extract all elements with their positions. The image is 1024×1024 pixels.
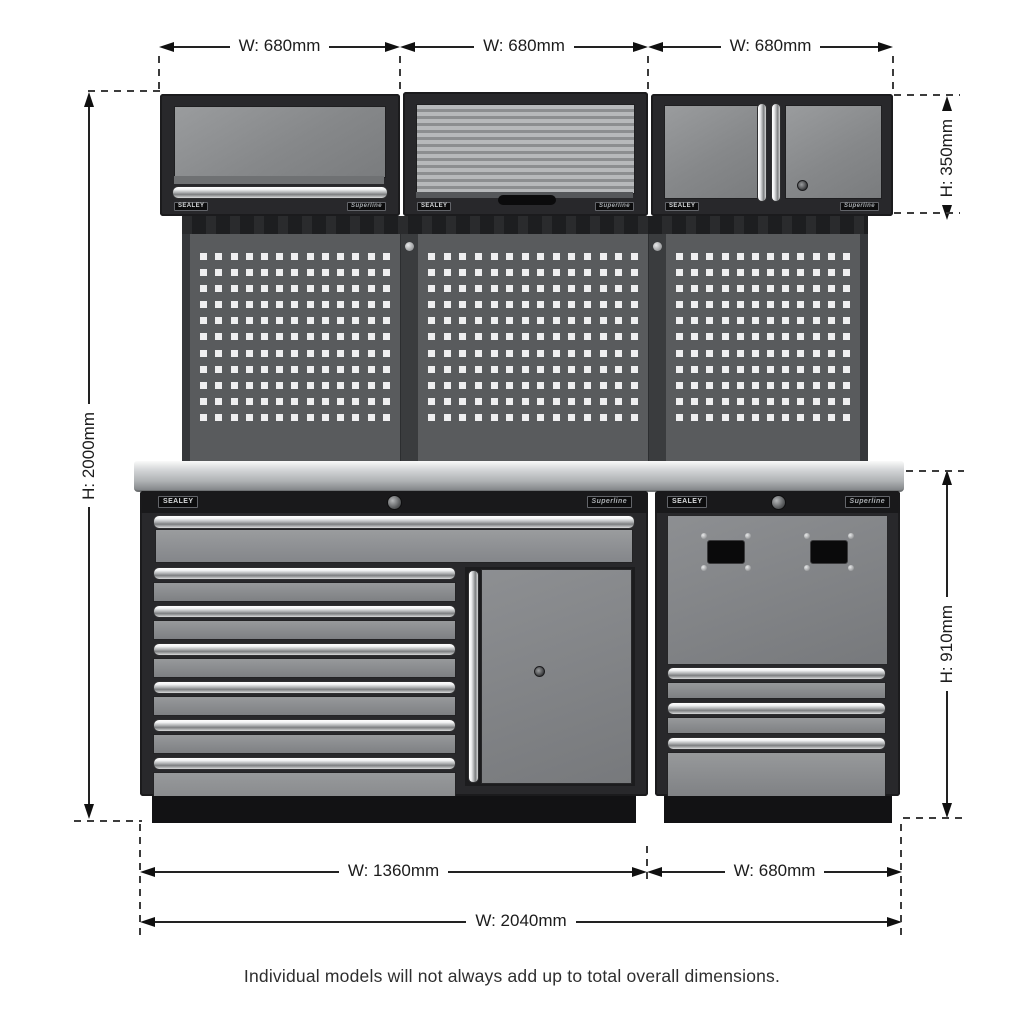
- peg-hole: [722, 350, 729, 357]
- peg-hole: [291, 269, 298, 276]
- peg-hole: [843, 350, 850, 357]
- base-module-left: SEALEY Superline: [140, 491, 648, 796]
- peg-hole: [782, 398, 789, 405]
- peg-hole: [752, 333, 759, 340]
- peg-hole: [276, 285, 283, 292]
- left-door-panel: [664, 105, 761, 199]
- peg-hole: [843, 398, 850, 405]
- peg-hole: [691, 317, 698, 324]
- pegboard-holes: [672, 248, 854, 426]
- pegboard-divider: [400, 234, 420, 463]
- drawer: [667, 737, 886, 800]
- peg-hole: [813, 301, 820, 308]
- peg-hole: [491, 350, 498, 357]
- peg-hole: [276, 350, 283, 357]
- dim-line: [415, 46, 474, 48]
- peg-hole: [813, 414, 820, 421]
- dim-line: [820, 46, 878, 48]
- brand-badge: SEALEY: [665, 202, 699, 211]
- peg-hole: [722, 285, 729, 292]
- door-lower-strip: [174, 176, 384, 184]
- peg-hole: [553, 350, 560, 357]
- peg-hole: [491, 285, 498, 292]
- dim-line: [155, 921, 466, 923]
- peg-hole: [291, 333, 298, 340]
- peg-hole: [600, 253, 607, 260]
- drawer-front: [153, 696, 456, 716]
- peg-hole: [600, 317, 607, 324]
- peg-hole: [737, 317, 744, 324]
- peg-hole: [706, 253, 713, 260]
- peg-hole: [782, 366, 789, 373]
- extension-line: [646, 846, 648, 884]
- dim-arrow-left-icon: [159, 42, 174, 52]
- peg-hole: [737, 333, 744, 340]
- peg-hole: [615, 333, 622, 340]
- peg-hole: [691, 366, 698, 373]
- peg-hole: [444, 350, 451, 357]
- peg-hole: [307, 414, 314, 421]
- peg-hole: [752, 350, 759, 357]
- peg-hole: [706, 301, 713, 308]
- peg-hole: [215, 350, 222, 357]
- peg-hole: [584, 285, 591, 292]
- peg-hole: [828, 285, 835, 292]
- screw-icon: [745, 565, 751, 571]
- brand-badge: SEALEY: [667, 496, 707, 508]
- dim-width-base-left: W: 1360mm: [140, 863, 647, 881]
- peg-hole: [459, 285, 466, 292]
- peg-hole: [522, 269, 529, 276]
- peg-hole: [215, 253, 222, 260]
- peg-hole: [767, 285, 774, 292]
- peg-hole: [475, 366, 482, 373]
- peg-hole: [631, 317, 638, 324]
- peg-hole: [813, 253, 820, 260]
- extension-line: [903, 817, 963, 819]
- peg-hole: [584, 382, 591, 389]
- peg-hole: [215, 398, 222, 405]
- peg-hole: [600, 301, 607, 308]
- peg-hole: [522, 350, 529, 357]
- peg-hole: [843, 285, 850, 292]
- peg-hole: [615, 382, 622, 389]
- peg-hole: [676, 398, 683, 405]
- peg-hole: [322, 253, 329, 260]
- peg-hole: [231, 269, 238, 276]
- peg-hole: [506, 350, 513, 357]
- peg-hole: [568, 285, 575, 292]
- peg-hole: [276, 253, 283, 260]
- peg-hole: [383, 333, 390, 340]
- peg-hole: [828, 253, 835, 260]
- drawer-stack: [667, 667, 886, 803]
- peg-hole: [737, 269, 744, 276]
- peg-hole: [737, 366, 744, 373]
- peg-hole: [568, 333, 575, 340]
- peg-hole: [537, 285, 544, 292]
- peg-hole: [428, 269, 435, 276]
- dim-arrow-left-icon: [648, 42, 663, 52]
- dim-arrow-right-icon: [632, 867, 647, 877]
- peg-hole: [337, 398, 344, 405]
- peg-hole: [231, 333, 238, 340]
- peg-hole: [368, 253, 375, 260]
- peg-hole: [352, 333, 359, 340]
- base-header: SEALEY Superline: [655, 491, 900, 513]
- peg-hole: [797, 317, 804, 324]
- peg-hole: [797, 382, 804, 389]
- peg-hole: [828, 350, 835, 357]
- brand-badge: SEALEY: [174, 202, 208, 211]
- peg-hole: [444, 269, 451, 276]
- extension-line: [894, 212, 960, 214]
- peg-hole: [737, 398, 744, 405]
- peg-hole: [843, 253, 850, 260]
- peg-hole: [261, 350, 268, 357]
- peg-hole: [200, 253, 207, 260]
- peg-hole: [276, 317, 283, 324]
- peg-hole: [691, 382, 698, 389]
- peg-hole: [200, 333, 207, 340]
- peg-hole: [506, 398, 513, 405]
- dim-line: [946, 691, 948, 803]
- peg-hole: [322, 366, 329, 373]
- peg-hole: [797, 333, 804, 340]
- peg-hole: [307, 350, 314, 357]
- peg-hole: [631, 366, 638, 373]
- peg-hole: [307, 269, 314, 276]
- drawer-handle: [667, 702, 886, 715]
- peg-hole: [537, 350, 544, 357]
- peg-hole: [261, 366, 268, 373]
- pegboard-panel: [190, 234, 400, 463]
- drawer-handle: [153, 681, 456, 694]
- peg-hole: [813, 285, 820, 292]
- peg-hole: [231, 253, 238, 260]
- peg-hole: [752, 317, 759, 324]
- peg-hole: [752, 414, 759, 421]
- peg-hole: [537, 366, 544, 373]
- peg-hole: [537, 253, 544, 260]
- screw-icon: [405, 242, 414, 251]
- dim-label: W: 1360mm: [339, 861, 448, 881]
- peg-hole: [537, 333, 544, 340]
- front-panel: [667, 515, 888, 665]
- peg-hole: [276, 301, 283, 308]
- peg-hole: [553, 285, 560, 292]
- dim-height-wall-cabinet: H: 350mm: [938, 96, 956, 213]
- peg-hole: [276, 333, 283, 340]
- peg-hole: [767, 253, 774, 260]
- dim-line: [448, 871, 632, 873]
- peg-hole: [553, 414, 560, 421]
- peg-hole: [322, 317, 329, 324]
- peg-hole: [261, 301, 268, 308]
- extension-line: [900, 824, 902, 936]
- peg-hole: [428, 317, 435, 324]
- peg-hole: [782, 350, 789, 357]
- peg-hole: [444, 382, 451, 389]
- wall-cabinet-door-panel: [174, 106, 386, 178]
- peg-hole: [291, 301, 298, 308]
- peg-hole: [631, 350, 638, 357]
- drawer-front: [667, 682, 886, 699]
- peg-hole: [475, 317, 482, 324]
- base-header: SEALEY Superline: [140, 491, 648, 513]
- peg-hole: [459, 382, 466, 389]
- peg-hole: [722, 253, 729, 260]
- plinth: [664, 796, 892, 823]
- peg-hole: [843, 333, 850, 340]
- dim-arrow-up-icon: [942, 96, 952, 111]
- peg-hole: [291, 253, 298, 260]
- wall-cabinet-roller-shutter: SEALEY Superline: [403, 92, 648, 216]
- dim-arrow-down-icon: [84, 804, 94, 819]
- dim-line: [88, 507, 90, 804]
- dim-arrow-right-icon: [385, 42, 400, 52]
- peg-hole: [615, 350, 622, 357]
- peg-hole: [200, 366, 207, 373]
- peg-hole: [506, 269, 513, 276]
- peg-hole: [782, 333, 789, 340]
- peg-hole: [337, 301, 344, 308]
- peg-hole: [491, 269, 498, 276]
- peg-hole: [428, 285, 435, 292]
- peg-hole: [261, 269, 268, 276]
- peg-hole: [261, 414, 268, 421]
- extension-line: [158, 56, 160, 91]
- peg-hole: [337, 253, 344, 260]
- peg-hole: [459, 333, 466, 340]
- peg-hole: [352, 350, 359, 357]
- peg-hole: [600, 382, 607, 389]
- peg-hole: [444, 366, 451, 373]
- peg-hole: [813, 366, 820, 373]
- peg-hole: [368, 317, 375, 324]
- peg-hole: [782, 414, 789, 421]
- peg-hole: [506, 333, 513, 340]
- brand-badge: SEALEY: [417, 202, 451, 211]
- peg-hole: [459, 350, 466, 357]
- peg-hole: [322, 382, 329, 389]
- peg-hole: [368, 366, 375, 373]
- peg-hole: [276, 269, 283, 276]
- drawer-handle: [667, 737, 886, 750]
- peg-hole: [615, 269, 622, 276]
- extension-line: [399, 56, 401, 91]
- peg-hole: [215, 366, 222, 373]
- dim-line: [174, 46, 230, 48]
- drawer-handle: [153, 757, 456, 770]
- peg-hole: [428, 382, 435, 389]
- peg-hole: [828, 317, 835, 324]
- peg-hole: [322, 285, 329, 292]
- lock-knob: [387, 495, 402, 510]
- peg-hole: [584, 333, 591, 340]
- peg-hole: [631, 301, 638, 308]
- peg-hole: [475, 333, 482, 340]
- peg-hole: [600, 269, 607, 276]
- screw-icon: [701, 533, 707, 539]
- dim-arrow-left-icon: [400, 42, 415, 52]
- extension-line: [647, 56, 649, 91]
- peg-hole: [553, 269, 560, 276]
- peg-hole: [444, 333, 451, 340]
- dim-arrow-right-icon: [878, 42, 893, 52]
- peg-hole: [459, 269, 466, 276]
- peg-hole: [676, 253, 683, 260]
- peg-hole: [231, 350, 238, 357]
- peg-hole: [737, 414, 744, 421]
- peg-hole: [843, 382, 850, 389]
- dim-label: H: 2000mm: [79, 404, 99, 508]
- peg-hole: [475, 301, 482, 308]
- peg-hole: [383, 398, 390, 405]
- peg-hole: [600, 414, 607, 421]
- peg-hole: [615, 366, 622, 373]
- peg-hole: [307, 285, 314, 292]
- drawer: [153, 681, 456, 716]
- dim-line: [663, 46, 721, 48]
- extension-line: [894, 94, 960, 96]
- peg-hole: [261, 285, 268, 292]
- screw-icon: [745, 533, 751, 539]
- peg-hole: [797, 253, 804, 260]
- door-handle-right: [771, 103, 781, 202]
- peg-hole: [584, 317, 591, 324]
- peg-hole: [537, 382, 544, 389]
- peg-hole: [752, 398, 759, 405]
- peg-hole: [337, 350, 344, 357]
- peg-hole: [291, 366, 298, 373]
- peg-hole: [600, 398, 607, 405]
- peg-hole: [615, 285, 622, 292]
- peg-hole: [352, 398, 359, 405]
- drawer-handle: [153, 643, 456, 656]
- peg-hole: [722, 317, 729, 324]
- peg-hole: [337, 333, 344, 340]
- peg-hole: [291, 285, 298, 292]
- cupboard-door: [481, 569, 632, 784]
- peg-hole: [615, 398, 622, 405]
- peg-hole: [475, 414, 482, 421]
- peg-hole: [797, 269, 804, 276]
- peg-hole: [553, 301, 560, 308]
- peg-hole: [352, 414, 359, 421]
- pegboard-edge: [860, 234, 868, 463]
- pegboard-top-rail: [182, 216, 868, 234]
- peg-hole: [615, 317, 622, 324]
- drawer-front: [667, 717, 886, 734]
- pegboard-holes: [196, 248, 394, 426]
- peg-hole: [276, 366, 283, 373]
- peg-hole: [368, 301, 375, 308]
- drawer: [153, 719, 456, 754]
- peg-hole: [584, 350, 591, 357]
- peg-hole: [722, 333, 729, 340]
- peg-hole: [767, 333, 774, 340]
- peg-hole: [215, 301, 222, 308]
- drawer-handle: [153, 719, 456, 732]
- peg-hole: [537, 414, 544, 421]
- peg-hole: [676, 317, 683, 324]
- peg-hole: [813, 382, 820, 389]
- peg-hole: [767, 366, 774, 373]
- series-badge: Superline: [587, 496, 633, 508]
- peg-hole: [737, 301, 744, 308]
- peg-hole: [722, 398, 729, 405]
- peg-hole: [522, 301, 529, 308]
- peg-hole: [813, 269, 820, 276]
- dim-label: W: 680mm: [721, 36, 821, 56]
- peg-hole: [752, 285, 759, 292]
- dim-width-wall-cabinet-3: W: 680mm: [648, 38, 893, 56]
- peg-hole: [368, 269, 375, 276]
- peg-hole: [231, 317, 238, 324]
- peg-hole: [444, 301, 451, 308]
- peg-hole: [706, 398, 713, 405]
- peg-hole: [568, 366, 575, 373]
- peg-hole: [691, 414, 698, 421]
- peg-hole: [843, 269, 850, 276]
- peg-hole: [676, 350, 683, 357]
- peg-hole: [706, 414, 713, 421]
- peg-hole: [691, 301, 698, 308]
- peg-hole: [368, 333, 375, 340]
- peg-hole: [337, 414, 344, 421]
- peg-hole: [600, 366, 607, 373]
- drawer: [667, 667, 886, 699]
- peg-hole: [631, 414, 638, 421]
- peg-hole: [459, 366, 466, 373]
- peg-hole: [383, 253, 390, 260]
- drawer-handle: [153, 605, 456, 618]
- peg-hole: [631, 333, 638, 340]
- peg-hole: [291, 317, 298, 324]
- peg-hole: [276, 382, 283, 389]
- dim-label: W: 2040mm: [466, 911, 575, 931]
- peg-hole: [752, 382, 759, 389]
- dim-label: H: 350mm: [937, 111, 957, 205]
- peg-hole: [522, 398, 529, 405]
- door-handle: [468, 570, 479, 783]
- peg-hole: [752, 301, 759, 308]
- peg-hole: [537, 269, 544, 276]
- peg-hole: [231, 382, 238, 389]
- peg-hole: [475, 382, 482, 389]
- peg-hole: [352, 366, 359, 373]
- peg-hole: [337, 382, 344, 389]
- peg-hole: [782, 382, 789, 389]
- peg-hole: [307, 382, 314, 389]
- peg-hole: [828, 333, 835, 340]
- peg-hole: [631, 382, 638, 389]
- dim-width-wall-cabinet-1: W: 680mm: [159, 38, 400, 56]
- peg-hole: [782, 301, 789, 308]
- peg-hole: [459, 253, 466, 260]
- extension-line: [139, 824, 141, 936]
- door-section: [465, 567, 635, 786]
- peg-hole: [383, 414, 390, 421]
- peg-hole: [491, 382, 498, 389]
- peg-hole: [428, 366, 435, 373]
- peg-hole: [584, 398, 591, 405]
- wall-cabinet-flip-door: SEALEY Superline: [160, 94, 400, 216]
- base-module-right: SEALEY Superline: [655, 491, 900, 796]
- peg-hole: [337, 269, 344, 276]
- peg-hole: [261, 382, 268, 389]
